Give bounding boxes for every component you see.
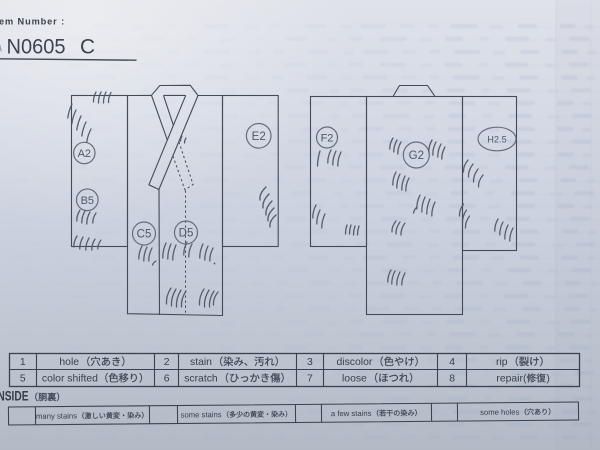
svg-text:color shifted: color shifted xyxy=(42,374,98,385)
svg-text:5: 5 xyxy=(20,374,26,385)
svg-text:E2: E2 xyxy=(252,131,266,143)
svg-text:G2: G2 xyxy=(409,150,424,162)
svg-text:rip: rip xyxy=(496,357,508,368)
svg-text:stain: stain xyxy=(190,357,212,368)
svg-text:7: 7 xyxy=(307,374,313,385)
svg-text:A2: A2 xyxy=(78,148,91,160)
svg-text:): ) xyxy=(546,374,549,385)
svg-text:2: 2 xyxy=(164,357,170,368)
svg-text:H2.5: H2.5 xyxy=(487,134,506,144)
svg-text:4: 4 xyxy=(449,357,455,368)
svg-text:scratch: scratch xyxy=(184,374,218,385)
svg-text:many stains: many stains xyxy=(36,411,77,420)
svg-text:C: C xyxy=(80,34,95,59)
svg-text:repair(: repair( xyxy=(496,374,527,385)
svg-text:some stains: some stains xyxy=(181,410,222,419)
svg-text:1: 1 xyxy=(20,357,26,368)
svg-text:N0605: N0605 xyxy=(7,34,66,59)
svg-text:hole: hole xyxy=(59,357,79,368)
svg-text:B5: B5 xyxy=(81,195,94,207)
svg-text:3: 3 xyxy=(307,357,313,368)
svg-text:loose: loose xyxy=(342,374,367,385)
svg-text:C5: C5 xyxy=(137,229,152,241)
svg-text:a few stains: a few stains xyxy=(331,409,372,418)
svg-text:INSIDE: INSIDE xyxy=(0,388,29,403)
svg-text:D5: D5 xyxy=(179,228,194,240)
svg-text:some holes: some holes xyxy=(480,408,520,417)
svg-text:6: 6 xyxy=(164,374,170,385)
svg-text:F2: F2 xyxy=(321,132,334,144)
svg-text:discolor: discolor xyxy=(337,357,373,368)
svg-text:em Number :: em Number : xyxy=(0,17,65,27)
svg-text:8: 8 xyxy=(449,374,455,385)
